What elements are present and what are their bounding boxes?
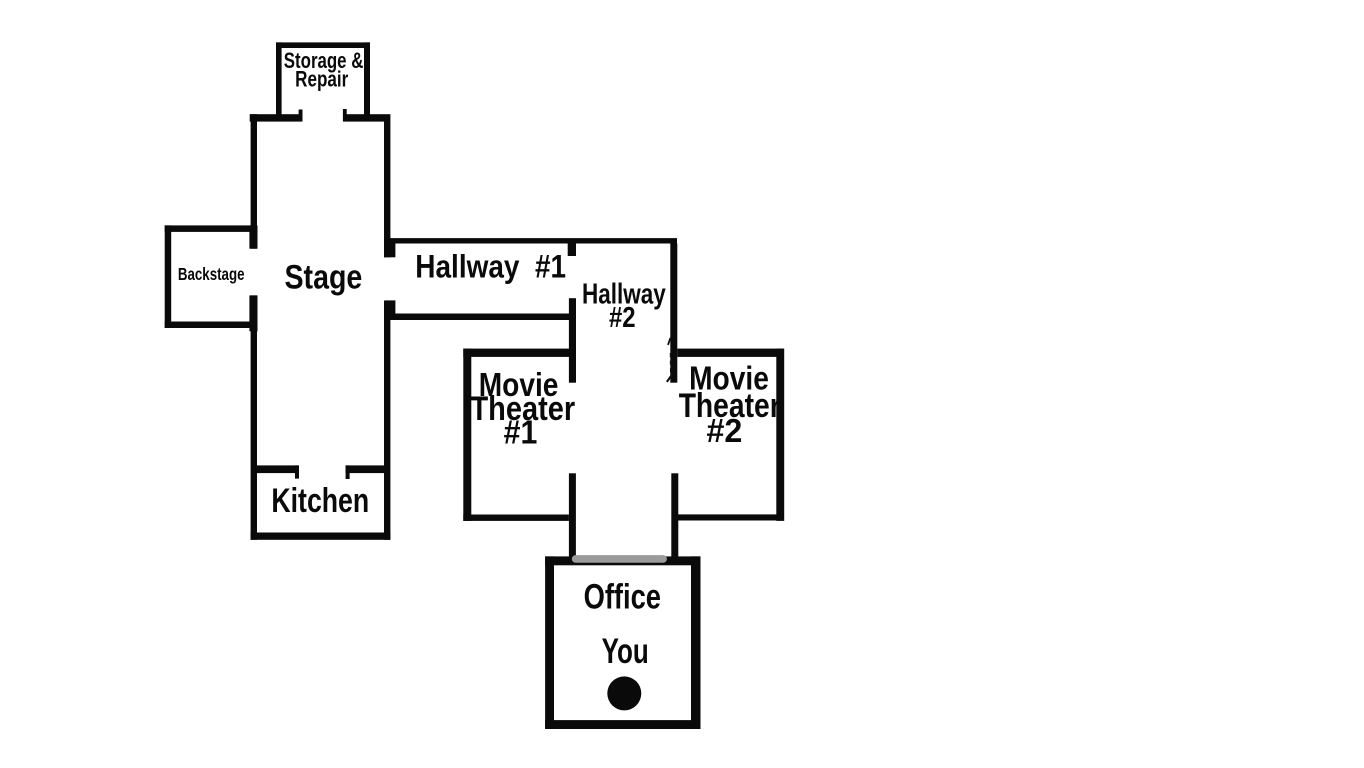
svg-text:#1: #1 [504,414,538,451]
svg-text:Repair: Repair [295,66,349,91]
svg-text:Backstage: Backstage [178,264,245,284]
svg-text:Office: Office [584,577,661,617]
svg-text:Stage: Stage [285,258,363,296]
svg-text:Kitchen: Kitchen [271,482,369,520]
svg-text:Hallway #1: Hallway #1 [415,247,566,284]
svg-text:#2: #2 [706,413,742,450]
svg-text:You: You [602,632,649,671]
svg-text:#2: #2 [609,302,636,334]
